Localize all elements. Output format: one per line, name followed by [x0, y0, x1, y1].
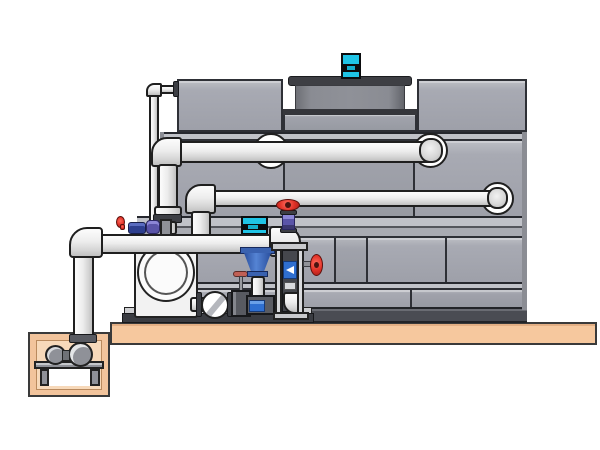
makeup-line-elbow — [146, 83, 162, 97]
middle-pipe-left-elbow — [185, 184, 216, 214]
suction-header-left-elbow — [69, 227, 103, 258]
sump-pump-coupling — [62, 350, 70, 361]
stand-bottom-rail — [273, 312, 309, 320]
fan-cowl-body — [295, 85, 405, 111]
vertical-pump-motor-window — [248, 225, 258, 229]
tower-top-right-panel — [417, 79, 527, 132]
pump-suction-eye — [144, 250, 188, 295]
upper-pipe-left-elbow — [151, 137, 182, 167]
illustration-stage — [0, 0, 600, 450]
tower-low-panel-3 — [366, 236, 447, 284]
upper-supply-pipe — [163, 141, 432, 163]
fan-motor-window — [347, 66, 355, 70]
stand-post-left — [275, 249, 282, 318]
tower-right-edge — [522, 132, 527, 310]
side-valve-hub — [314, 262, 319, 268]
discharge-valve-hub — [285, 202, 291, 208]
sump-pump-table-leg — [40, 369, 49, 386]
sump-pump-table-leg — [90, 369, 100, 386]
sump-pit-underside — [49, 369, 91, 386]
check-valve-disc — [204, 293, 228, 319]
tower-low-panel-2 — [334, 236, 368, 284]
discharge-valve-body — [282, 214, 295, 230]
middle-return-pipe — [198, 190, 498, 207]
vertical-pump-blue-fitting — [249, 300, 265, 312]
vertical-pump-top-flange — [240, 247, 275, 254]
sump-drop-pipe — [73, 255, 94, 337]
stand-label-plate — [284, 282, 296, 290]
middle-pipe-elbow-cap — [487, 187, 508, 209]
tower-base-panel-2 — [410, 288, 527, 309]
stand-post-right — [297, 249, 304, 318]
fan-deck-recess — [283, 112, 417, 132]
header-tap-valve-body — [120, 224, 125, 230]
tower-low-panel-4 — [445, 236, 527, 284]
tower-top-left-panel — [177, 79, 283, 132]
makeup-line-wall-flange — [173, 81, 179, 97]
header-fitting-cylinder — [128, 222, 146, 234]
upper-pipe-riser — [158, 164, 178, 210]
header-ball-valve — [146, 220, 160, 234]
flow-display — [283, 261, 297, 279]
sump-pump-casing — [68, 342, 93, 367]
upper-pipe-elbow-cap — [419, 138, 443, 163]
check-valve — [201, 291, 229, 319]
sump-pump-table — [34, 361, 104, 369]
ground-slab — [110, 322, 597, 345]
header-flange-block — [160, 219, 172, 236]
fan-cowl-base — [283, 109, 417, 115]
flow-arrow-icon — [286, 266, 294, 274]
